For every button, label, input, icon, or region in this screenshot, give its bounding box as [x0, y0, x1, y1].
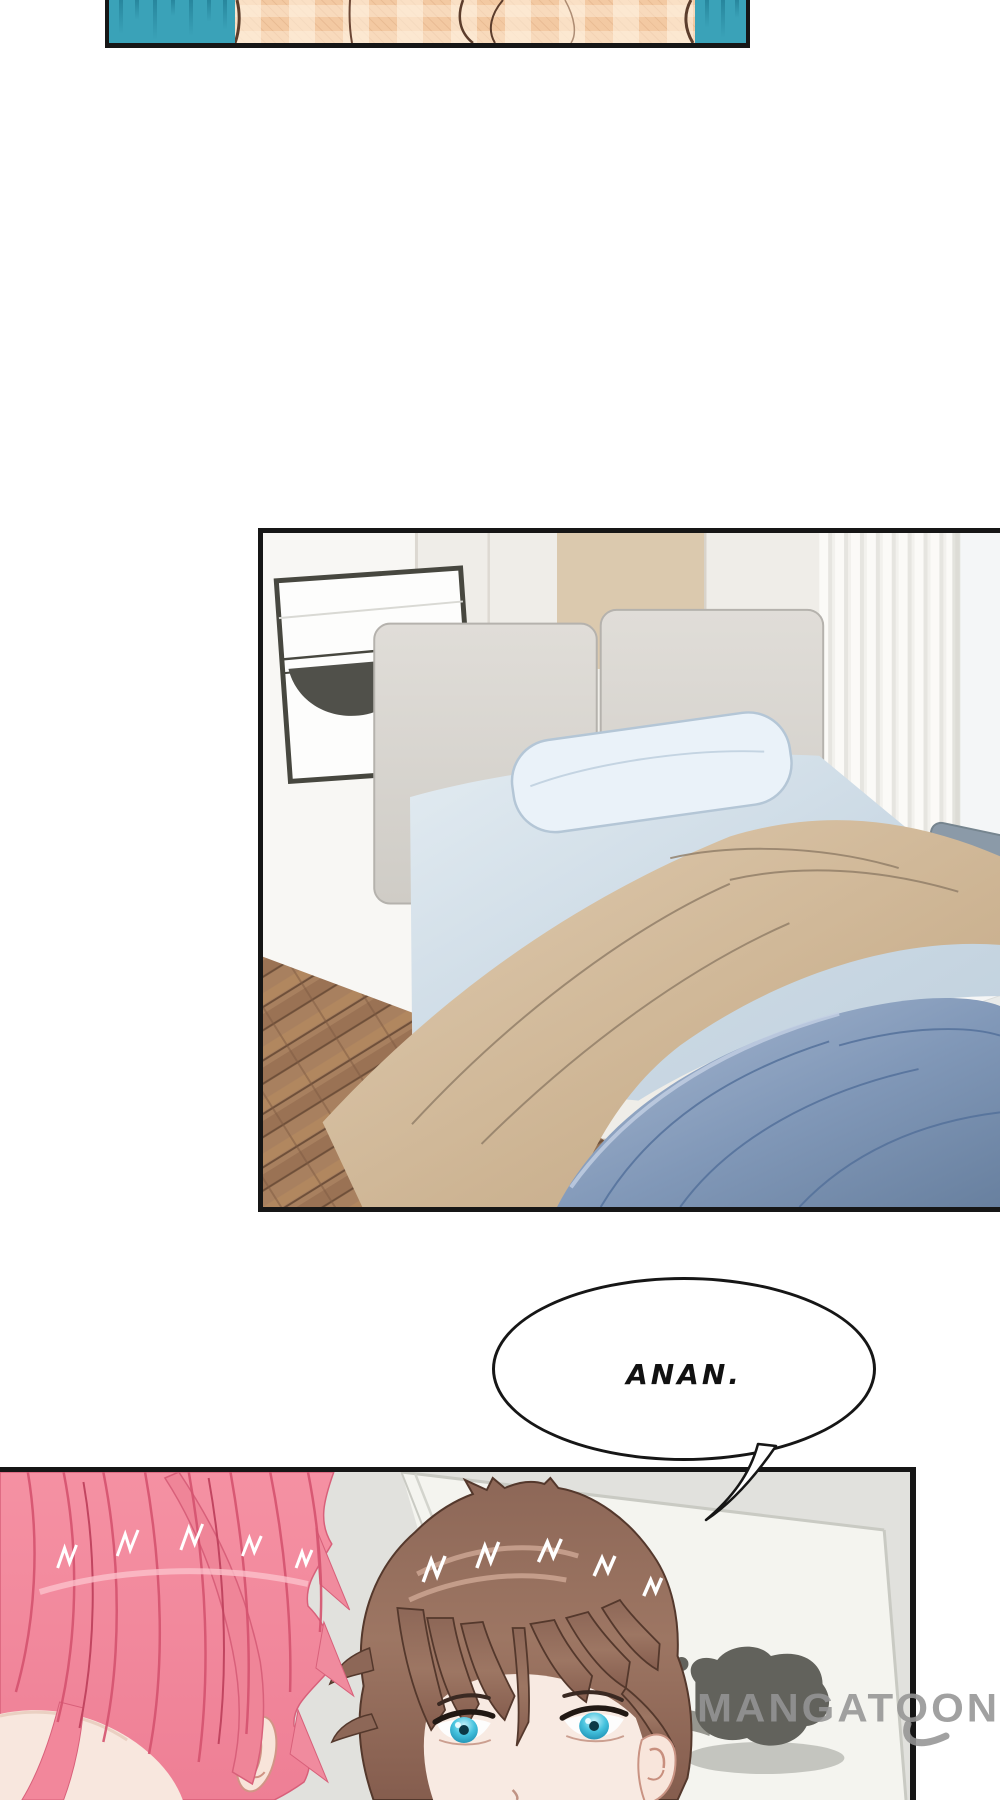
- rain-streak: [207, 0, 211, 22]
- rain-streak: [735, 0, 739, 18]
- speech-bubble-text: ANAN.: [626, 1348, 742, 1391]
- rain-streak: [171, 0, 175, 16]
- rain-streak: [189, 0, 193, 36]
- plaid-shirt-torso: [235, 0, 695, 43]
- comic-panel-intro: [105, 0, 750, 48]
- rain-streak: [223, 0, 227, 30]
- comic-panel-bedroom: [258, 528, 1000, 1212]
- rain-streak: [135, 0, 139, 20]
- watermark-curl-icon: [900, 1720, 954, 1756]
- rain-streak: [721, 0, 725, 38]
- manga-page: ANAN.: [0, 0, 1000, 1800]
- rain-streak: [153, 0, 157, 40]
- bedroom-scene: [263, 533, 1000, 1207]
- rain-streak: [705, 0, 709, 28]
- shirt-seam-lines: [235, 0, 695, 43]
- mangatoon-watermark: MANGATOON: [697, 1685, 1000, 1731]
- speech-bubble-tail: [690, 1430, 790, 1526]
- speech-bubble: ANAN.: [492, 1277, 876, 1461]
- rain-streak: [119, 0, 123, 34]
- girl-character: [0, 1472, 354, 1800]
